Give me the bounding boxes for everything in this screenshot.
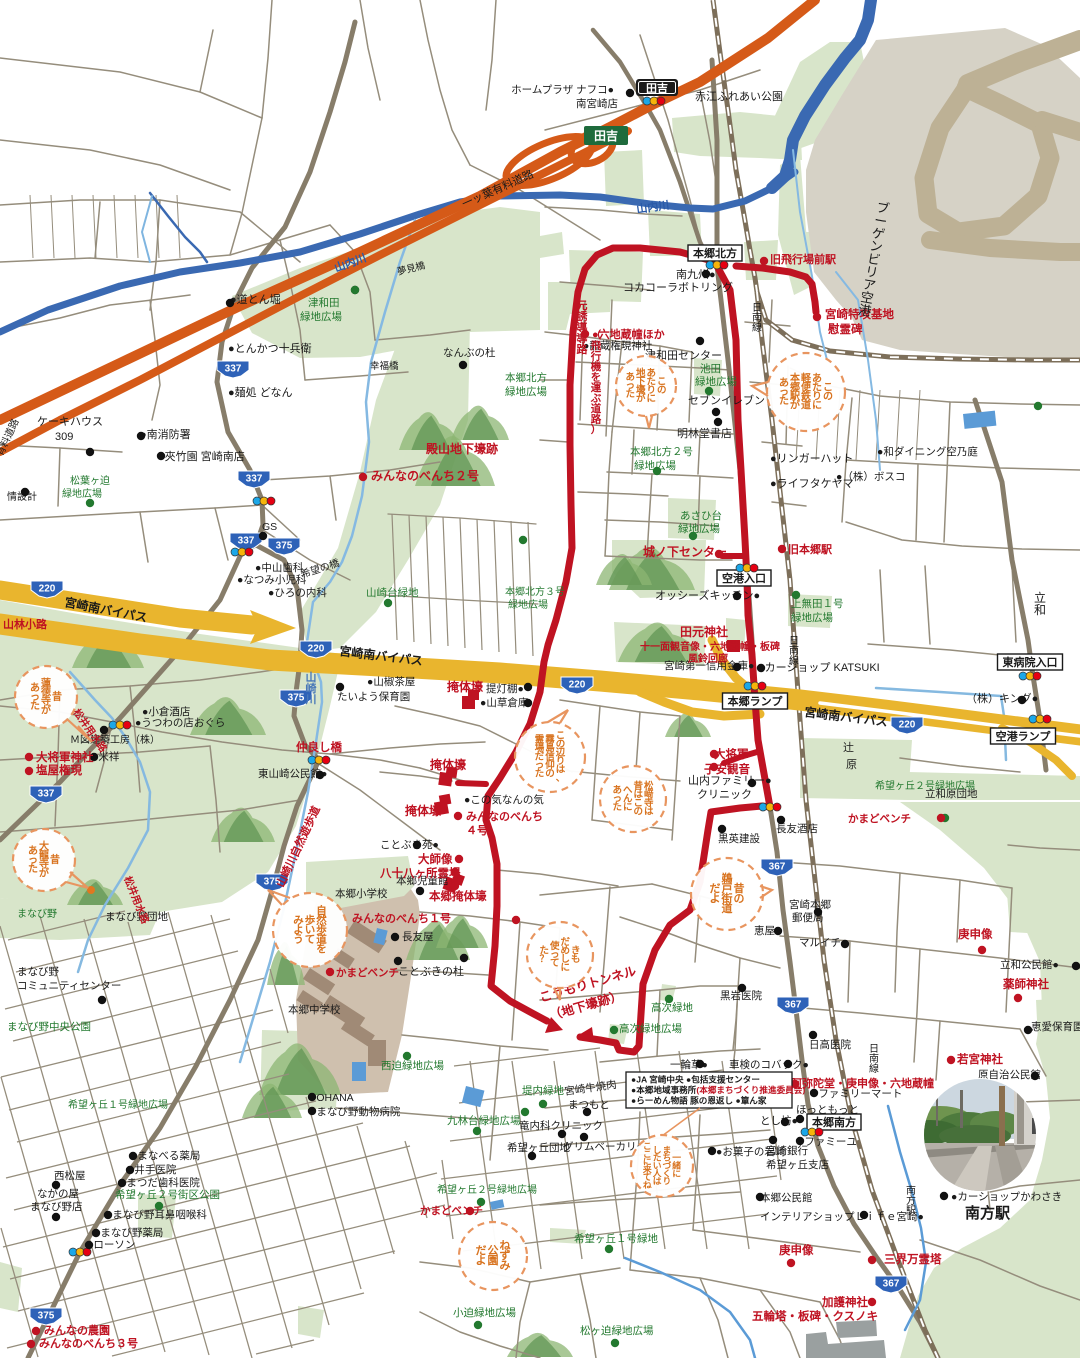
svg-text:だめしに: だめしに (560, 937, 570, 974)
svg-text:本郷中学校: 本郷中学校 (288, 1003, 341, 1016)
svg-text:田元神社: 田元神社 (680, 624, 728, 639)
svg-text:東病院入口: 東病院入口 (1003, 655, 1058, 669)
svg-text:たいよう保育園: たいよう保育園 (337, 690, 410, 703)
svg-text:西迫緑地広場: 西迫緑地広場 (381, 1059, 444, 1072)
svg-text:220: 220 (308, 644, 325, 655)
svg-text:●まつだ歯科医院: ●まつだ歯科医院 (120, 1176, 200, 1189)
svg-text:日高医院: 日高医院 (809, 1038, 851, 1051)
svg-text:希望ヶ丘支店: 希望ヶ丘支店 (766, 1158, 829, 1171)
svg-text:コミュニティセンター: コミュニティセンター (17, 980, 121, 992)
svg-text:西松屋: 西松屋 (54, 1169, 86, 1182)
svg-text:旧飛行場前駅: 旧飛行場前駅 (770, 252, 836, 266)
svg-text:375: 375 (38, 1311, 55, 1322)
svg-text:津和田: 津和田 (308, 297, 340, 309)
svg-text:恵愛保育園: 恵愛保育園 (1031, 1020, 1080, 1033)
svg-text:みよう: みよう (293, 915, 304, 946)
svg-text:原: 原 (846, 759, 857, 771)
svg-text:367: 367 (785, 1000, 802, 1011)
svg-text:空港入口: 空港入口 (722, 571, 766, 585)
svg-text:へんに: へんに (623, 785, 633, 813)
svg-text:（飛行機を運ぶ道路）: （飛行機を運ぶ道路） (590, 329, 602, 437)
svg-text:使って: 使って (549, 940, 560, 969)
svg-text:●ひろの内科: ●ひろの内科 (268, 586, 327, 599)
svg-text:大龍寺が: 大龍寺が (39, 839, 50, 879)
svg-text:クリニック: クリニック (697, 788, 752, 801)
svg-text:309: 309 (55, 431, 73, 443)
svg-text:あたりに: あたりに (812, 371, 822, 411)
svg-text:南方駅: 南方駅 (906, 1184, 916, 1217)
svg-text:みんなのべんち: みんなのべんち (466, 810, 543, 823)
svg-text:明林堂書店: 明林堂書店 (677, 426, 732, 440)
svg-text:緑地広場: 緑地広場 (678, 522, 720, 535)
svg-text:霊場だった: 霊場だった (535, 734, 545, 780)
svg-text:GS: GS (262, 521, 277, 533)
svg-text:４号: ４号 (466, 824, 488, 837)
svg-text:塩屋権現: 塩屋権現 (36, 763, 82, 777)
svg-text:あった: あった (625, 371, 635, 400)
svg-text:緑地広場: 緑地広場 (508, 598, 548, 611)
svg-text:みんなのべんち２号: みんなのべんち２号 (371, 468, 479, 483)
svg-text:●道とん堀: ●道とん堀 (230, 292, 281, 306)
svg-text:大将軍: 大将軍 (714, 747, 749, 761)
svg-text:●お菓子の岩崎: ●お菓子の岩崎 (716, 1145, 786, 1158)
svg-text:大師像: 大師像 (418, 852, 453, 866)
svg-text:風鈴回廊: 風鈴回廊 (688, 652, 728, 665)
svg-text:（株）キング●: （株）キング● (966, 691, 1038, 705)
svg-text:●まなび野耳鼻咽喉科: ●まなび野耳鼻咽喉科 (106, 1208, 207, 1221)
svg-text:●南消防署: ●南消防署 (140, 427, 191, 441)
svg-text:●JA 宮崎中央 ●包括支援センター: ●JA 宮崎中央 ●包括支援センター (631, 1074, 760, 1085)
svg-text:ねずみ: ねずみ (500, 1239, 511, 1272)
svg-text:本郷北方３号: 本郷北方３号 (505, 585, 565, 598)
svg-text:あさひ台: あさひ台 (680, 509, 722, 522)
svg-text:まなび野: まなび野 (17, 908, 57, 920)
svg-text:●夾竹園 宮崎南店: ●夾竹園 宮崎南店 (158, 449, 245, 463)
svg-text:緑地広場: 緑地広場 (695, 375, 737, 388)
svg-text:松﨑寺は: 松﨑寺は (644, 780, 654, 818)
svg-text:公園: 公園 (488, 1244, 499, 1267)
svg-text:●カーショップかわさき: ●カーショップかわさき (951, 1191, 1062, 1203)
svg-text:歩いて: 歩いて (305, 914, 316, 946)
svg-text:まちづくり: まちづくり (662, 1145, 671, 1186)
svg-text:あたりに: あたりに (646, 367, 656, 405)
svg-text:加護神社: 加護神社 (821, 1295, 868, 1309)
svg-text:この: この (823, 382, 833, 402)
svg-text:霧島信仰の: 霧島信仰の (544, 735, 555, 780)
svg-text:緑地広場: 緑地広場 (300, 310, 342, 323)
svg-text:赤江ふれあい公園: 赤江ふれあい公園 (695, 90, 783, 103)
svg-text:●うつわの店おぐら: ●うつわの店おぐら (135, 716, 225, 729)
svg-text:五輪塔・板碑・クスノキ: 五輪塔・板碑・クスノキ (752, 1309, 878, 1323)
svg-text:あった: あった (779, 376, 789, 407)
svg-text:掩体壕: 掩体壕 (447, 679, 484, 694)
svg-text:南宮崎店: 南宮崎店 (576, 97, 618, 110)
svg-text:●カーショップ KATSUKI: ●カーショップ KATSUKI (758, 661, 880, 674)
svg-text:コカコーラボトリング: コカコーラボトリング (623, 280, 733, 294)
svg-text:八十八ヶ所霊場: 八十八ヶ所霊場 (379, 866, 461, 880)
svg-text:希望ヶ丘２号街区公園: 希望ヶ丘２号街区公園 (115, 1188, 220, 1201)
svg-text:昔の: 昔の (734, 881, 745, 905)
svg-text:マルイチ: マルイチ (799, 937, 841, 949)
svg-text:高次緑地広場: 高次緑地広場 (619, 1022, 682, 1035)
svg-text:あった: あった (28, 844, 38, 875)
svg-text:旧本郷駅: 旧本郷駅 (788, 542, 832, 556)
svg-text:なんぶの杜: なんぶの杜 (443, 346, 496, 359)
svg-text:庚申像: 庚申像 (958, 927, 993, 941)
svg-text:本郷掩体壕: 本郷掩体壕 (429, 889, 487, 903)
svg-text:だよ: だよ (476, 1244, 487, 1267)
svg-text:本郷北方２号: 本郷北方２号 (630, 445, 693, 458)
svg-text:220: 220 (569, 680, 586, 691)
svg-text:緑地広場: 緑地広場 (62, 487, 102, 500)
svg-text:とし坊●: とし坊● (760, 1114, 798, 1127)
svg-text:ほっともっと: ほっともっと (796, 1104, 859, 1116)
svg-text:ことぶき苑●: ことぶき苑● (380, 838, 439, 851)
svg-text:仲良し橋: 仲良し橋 (296, 740, 342, 754)
svg-text:337: 337 (238, 536, 255, 547)
svg-text:●まなべる薬局: ●まなべる薬局 (131, 1150, 200, 1162)
svg-text:殿山地下壕跡: 殿山地下壕跡 (425, 441, 498, 456)
svg-text:きも: きも (571, 946, 581, 966)
svg-text:希望ヶ丘２号緑地広場: 希望ヶ丘２号緑地広場 (875, 779, 975, 792)
svg-text:昔はこの: 昔はこの (633, 780, 643, 818)
svg-text:堤内緑地: 堤内緑地 (522, 1084, 564, 1097)
svg-text:池田: 池田 (700, 362, 721, 375)
svg-text:自然歩道を: 自然歩道を (315, 904, 327, 955)
svg-text:●なつみ小児科: ●なつみ小児科 (237, 573, 307, 586)
svg-text:黒英建設: 黒英建設 (718, 832, 760, 845)
svg-text:上無田１号: 上無田１号 (791, 597, 844, 610)
svg-text:ながの屋: ながの屋 (37, 1187, 79, 1200)
svg-text:若宮神社: 若宮神社 (957, 1052, 1003, 1066)
svg-text:九林台緑地広場: 九林台緑地広場 (447, 1114, 521, 1127)
svg-text:本郷ランプ: 本郷ランプ (728, 694, 784, 708)
svg-text:●井手医院: ●井手医院 (128, 1163, 177, 1176)
svg-text:城ノ下センター: 城ノ下センター (643, 544, 727, 559)
svg-text:●この気なんの気: ●この気なんの気 (464, 793, 544, 806)
svg-text:昔: 昔 (52, 690, 62, 703)
svg-text:だよ: だよ (710, 882, 721, 905)
svg-text:宮崎本郷: 宮崎本郷 (789, 898, 831, 911)
svg-text:●山椒茶屋: ●山椒茶屋 (367, 675, 415, 688)
svg-text:●山草倉庫: ●山草倉庫 (480, 696, 529, 709)
svg-text:この: この (657, 377, 667, 397)
svg-text:希望ヶ丘１号緑地広場: 希望ヶ丘１号緑地広場 (68, 1098, 168, 1111)
svg-text:緑地広場: 緑地広場 (505, 385, 547, 398)
svg-text:幸福橋: 幸福橋 (370, 360, 399, 372)
svg-text:蓮徳寺が: 蓮徳寺が (40, 676, 52, 716)
svg-text:庚申像: 庚申像 (779, 1243, 814, 1257)
svg-text:ホームプラザ ナフコ●: ホームプラザ ナフコ● (511, 84, 614, 96)
svg-text:●本郷地域事務所(本郷まちづくり推進委員会): ●本郷地域事務所(本郷まちづくり推進委員会) (631, 1084, 805, 1095)
svg-text:セブンイレブン: セブンイレブン (688, 393, 765, 407)
svg-text:367: 367 (883, 1279, 900, 1290)
svg-text:本郷南方: 本郷南方 (812, 1115, 856, 1129)
svg-text:●麺処 どなん: ●麺処 どなん (228, 386, 292, 399)
svg-text:この辺りは、: この辺りは、 (556, 731, 566, 785)
svg-text:山林小路: 山林小路 (3, 617, 48, 631)
svg-text:長友屋: 長友屋 (402, 930, 434, 943)
svg-text:元誘導導路: 元誘導導路 (577, 299, 589, 356)
svg-text:希望ヶ丘団地: 希望ヶ丘団地 (507, 1141, 570, 1154)
svg-text:十一面観音像・六地蔵幢・板碑: 十一面観音像・六地蔵幢・板碑 (640, 640, 780, 653)
svg-text:希望ヶ丘２号緑地広場: 希望ヶ丘２号緑地広場 (437, 1183, 537, 1196)
svg-text:立和公民館●: 立和公民館● (1000, 958, 1059, 971)
svg-text:薬師神社: 薬師神社 (1002, 977, 1049, 991)
svg-text:本郷北方: 本郷北方 (693, 246, 737, 260)
svg-text:●とんかつ十兵衛: ●とんかつ十兵衛 (228, 341, 312, 355)
svg-text:●まなび野薬局: ●まなび野薬局 (94, 1227, 163, 1239)
svg-text:367: 367 (769, 862, 786, 873)
svg-text:●まなび野動物病院: ●まなび野動物病院 (310, 1105, 401, 1118)
svg-text:まなび野店: まなび野店 (30, 1200, 83, 1213)
svg-text:220: 220 (899, 720, 916, 731)
svg-text:みんなのべんち３号: みんなのべんち３号 (39, 1337, 138, 1350)
svg-text:希望ヶ丘１号緑地: 希望ヶ丘１号緑地 (574, 1232, 658, 1245)
svg-text:337: 337 (246, 474, 263, 485)
svg-text:●和ダイニング空乃庭: ●和ダイニング空乃庭 (877, 445, 978, 458)
svg-text:空港ランプ: 空港ランプ (996, 729, 1052, 743)
svg-text:まなび野: まなび野 (17, 966, 59, 978)
svg-text:掩体壕: 掩体壕 (430, 757, 467, 772)
svg-text:オッシーズキッチン●: オッシーズキッチン● (655, 588, 760, 602)
svg-text:田吉: 田吉 (646, 81, 668, 95)
svg-text:かまどベンチ: かまどベンチ (848, 812, 911, 825)
svg-text:あった: あった (30, 681, 40, 712)
svg-text:南方駅: 南方駅 (965, 1204, 1011, 1222)
svg-text:高次緑地: 高次緑地 (651, 1001, 693, 1014)
svg-text:ことぶきの杜: ことぶきの杜 (398, 964, 464, 978)
svg-text:みんなの農園: みんなの農園 (44, 1323, 110, 1337)
svg-text:松ヶ迫緑地広場: 松ヶ迫緑地広場 (580, 1324, 654, 1337)
svg-text:375: 375 (288, 693, 305, 704)
svg-text:337: 337 (38, 789, 55, 800)
svg-text:車検のコバック●: 車検のコバック● (729, 1058, 809, 1071)
svg-text:375: 375 (276, 541, 293, 552)
svg-text:小迫緑地広場: 小迫緑地広場 (453, 1306, 516, 1319)
svg-text:三界万霊塔: 三界万霊塔 (884, 1252, 942, 1266)
svg-text:田吉: 田吉 (594, 128, 618, 143)
svg-text:337: 337 (225, 364, 242, 375)
svg-text:インテリアショップＬｉｆｅ宮崎●: インテリアショップＬｉｆｅ宮崎● (760, 1210, 924, 1223)
svg-text:日南線: 日南線 (752, 303, 762, 334)
svg-text:日南線: 日南線 (789, 636, 799, 667)
svg-text:本郷小学校: 本郷小学校 (335, 887, 388, 900)
svg-text:地下壕が: 地下壕が (636, 367, 646, 405)
svg-text:提灯棚●: 提灯棚● (486, 682, 524, 695)
svg-text:ケーキハウス: ケーキハウス (37, 415, 103, 428)
svg-text:かまどベンチ: かまどベンチ (336, 966, 399, 979)
svg-text:山崎川: 山崎川 (305, 670, 317, 706)
svg-text:鵜戸街道: 鵜戸街道 (721, 871, 733, 915)
svg-text:本郷駅が: 本郷駅が (789, 371, 801, 411)
svg-text:したい人は: したい人は (653, 1145, 662, 1186)
svg-text:掩体壕: 掩体壕 (405, 803, 442, 818)
svg-text:●OHANA: ●OHANA (310, 1092, 354, 1104)
svg-text:●（株）ボスコ: ●（株）ボスコ (836, 470, 905, 483)
svg-text:●らーめん物語 豚の恩返し ●簞ん家: ●らーめん物語 豚の恩返し ●簞ん家 (631, 1095, 767, 1106)
svg-text:日南線: 日南線 (869, 1044, 879, 1075)
svg-text:山崎台緑地: 山崎台緑地 (366, 586, 419, 599)
svg-text:立和: 立和 (1034, 590, 1046, 617)
svg-text:●六地蔵幢ほか: ●六地蔵幢ほか (592, 327, 665, 341)
svg-text:ここに来てね: ここに来てね (642, 1141, 652, 1190)
svg-text:●ローソン: ●ローソン (87, 1239, 135, 1251)
svg-text:あった: あった (612, 784, 622, 813)
svg-text:慰霊碑: 慰霊碑 (828, 322, 863, 336)
svg-text:大将軍神社: 大将軍神社 (36, 750, 94, 764)
svg-text:本郷北方: 本郷北方 (505, 371, 547, 384)
svg-text:昔: 昔 (50, 853, 60, 866)
svg-text:た？: た？ (539, 946, 549, 966)
svg-text:220: 220 (39, 584, 56, 595)
svg-text:辻: 辻 (843, 740, 854, 754)
svg-text:阿弥陀堂・庚申像・六地蔵幢: 阿弥陀堂・庚申像・六地蔵幢 (791, 1076, 934, 1090)
svg-text:本郷公民館: 本郷公民館 (760, 1191, 813, 1204)
svg-text:松葉ヶ迫: 松葉ヶ迫 (70, 474, 110, 487)
svg-text:まなび野中央公園: まなび野中央公園 (7, 1020, 91, 1033)
svg-text:緑地広場: 緑地広場 (791, 611, 833, 624)
svg-text:みんなのべんち１号: みんなのべんち１号 (352, 912, 451, 925)
svg-text:●中山歯科: ●中山歯科 (255, 561, 304, 574)
svg-text:●リンガーハット: ●リンガーハット (770, 452, 853, 465)
svg-text:軽便鉄道: 軽便鉄道 (801, 371, 812, 411)
svg-text:一緒に: 一緒に (672, 1153, 681, 1179)
